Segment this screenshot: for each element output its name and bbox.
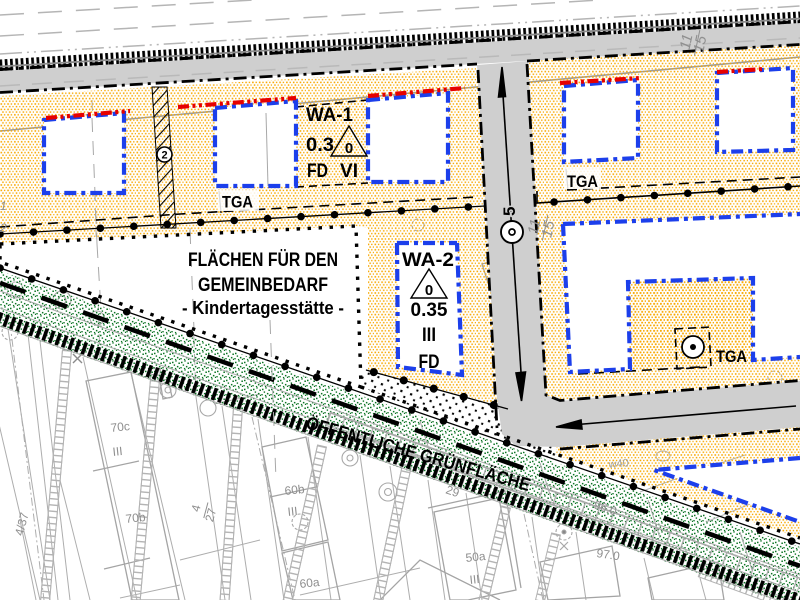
svg-text:III: III bbox=[287, 504, 298, 519]
svg-text:w40: w40 bbox=[607, 457, 629, 471]
svg-text:70c: 70c bbox=[110, 419, 131, 435]
svg-text:1: 1 bbox=[0, 199, 7, 213]
svg-text:60a: 60a bbox=[299, 575, 321, 591]
svg-text:2: 2 bbox=[161, 150, 167, 162]
svg-text:TGA: TGA bbox=[716, 347, 747, 366]
svg-text:GEMEINBEDARF: GEMEINBEDARF bbox=[198, 275, 328, 296]
svg-text:50a: 50a bbox=[465, 549, 487, 565]
svg-text:FLÄCHEN FÜR DEN: FLÄCHEN FÜR DEN bbox=[188, 250, 338, 271]
svg-text:TGA: TGA bbox=[567, 172, 598, 191]
svg-text:III: III bbox=[469, 572, 480, 587]
svg-text:WA-1: WA-1 bbox=[306, 105, 353, 126]
svg-text:FD: FD bbox=[419, 352, 440, 373]
svg-text:- Kindertagesstätte -: - Kindertagesstätte - bbox=[182, 298, 344, 318]
svg-text:2: 2 bbox=[0, 221, 7, 235]
svg-text:0: 0 bbox=[345, 140, 353, 157]
svg-text:5: 5 bbox=[500, 207, 519, 216]
svg-text:III: III bbox=[422, 325, 436, 346]
svg-text:III: III bbox=[112, 444, 123, 459]
svg-text:70b: 70b bbox=[125, 510, 147, 526]
svg-text:0.35: 0.35 bbox=[411, 300, 448, 321]
svg-text:TGA: TGA bbox=[222, 193, 253, 212]
svg-text:0: 0 bbox=[425, 282, 433, 299]
svg-text:FD: FD bbox=[307, 161, 328, 182]
svg-text:60b: 60b bbox=[284, 482, 306, 498]
svg-text:0.3: 0.3 bbox=[306, 135, 334, 156]
svg-text:WA-2: WA-2 bbox=[402, 250, 454, 271]
svg-text:VI: VI bbox=[340, 161, 358, 182]
